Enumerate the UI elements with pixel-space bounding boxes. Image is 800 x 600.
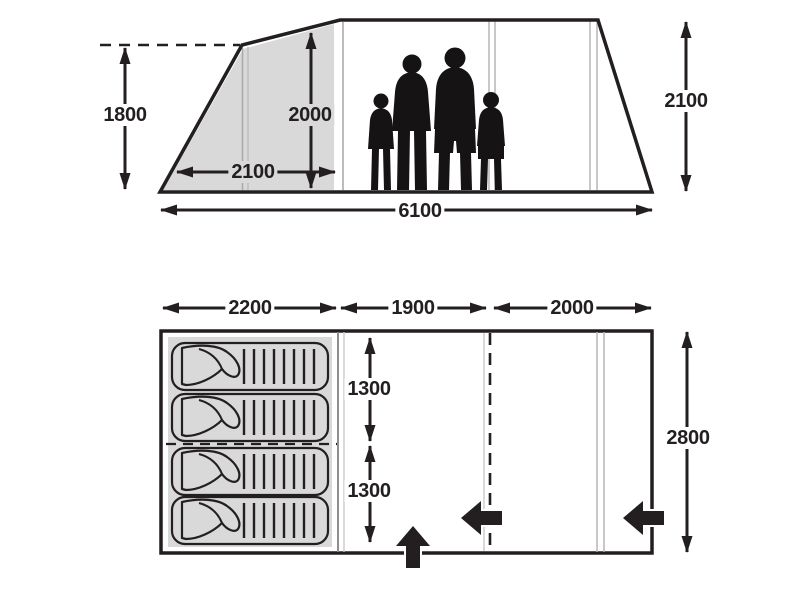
dim-label-half-depth-lower: 1300	[344, 480, 393, 502]
sleeping-bag	[172, 448, 328, 495]
person-girl	[368, 94, 394, 191]
dim-label-bedroom-section: 2200	[225, 297, 274, 319]
dim-label-max-height: 2100	[661, 90, 710, 112]
dim-label-total-length: 6100	[395, 200, 444, 222]
person-man	[434, 48, 476, 191]
person-boy	[477, 92, 505, 190]
dim-label-total-depth: 2800	[663, 427, 712, 449]
sleeping-bag	[172, 394, 328, 441]
dim-label-inner-height: 2000	[285, 104, 334, 126]
side-elevation-view	[100, 20, 686, 210]
person-woman	[392, 55, 431, 191]
dim-label-bedroom-length: 2100	[228, 161, 277, 183]
floor-plan-view	[161, 308, 687, 568]
dim-label-living-section: 1900	[388, 297, 437, 319]
dim-label-front-height: 1800	[100, 104, 149, 126]
sleeping-bag	[172, 343, 328, 390]
tent-spec-diagram: 1800 2000 2100 6100 2100 2200 1900 2000 …	[0, 0, 800, 600]
family-scale-silhouette	[368, 48, 505, 191]
dim-label-half-depth-upper: 1300	[344, 378, 393, 400]
dim-label-front-section: 2000	[547, 297, 596, 319]
sleeping-bag	[172, 497, 328, 544]
